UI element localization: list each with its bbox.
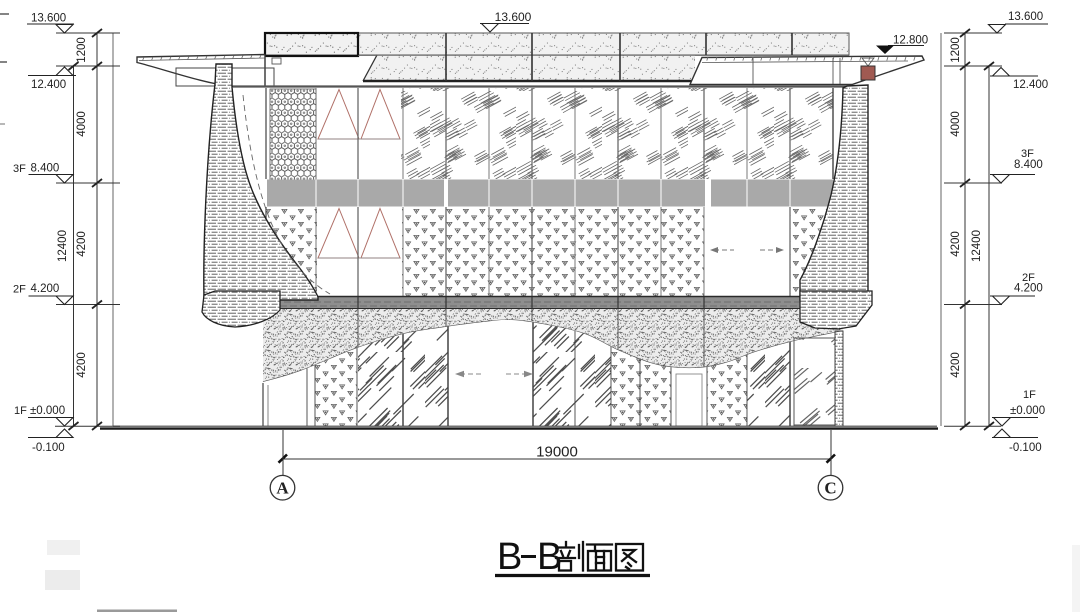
svg-text:13.600: 13.600	[31, 13, 66, 25]
svg-text:2F: 2F	[13, 284, 26, 296]
svg-text:4200: 4200	[950, 231, 962, 257]
svg-text:13.600: 13.600	[1008, 11, 1043, 23]
svg-text:1F: 1F	[14, 405, 27, 417]
svg-text:8.400: 8.400	[1014, 159, 1043, 171]
svg-text:4.200: 4.200	[31, 283, 60, 295]
svg-text:-0.100: -0.100	[1009, 442, 1042, 454]
svg-text:B: B	[497, 536, 522, 578]
svg-text:4000: 4000	[950, 111, 962, 137]
svg-text:4200: 4200	[950, 352, 962, 378]
svg-text:8.400: 8.400	[31, 163, 60, 175]
svg-text:12400: 12400	[57, 230, 69, 262]
svg-text:13.600: 13.600	[495, 10, 532, 24]
svg-text:A: A	[276, 479, 289, 498]
svg-text:3F: 3F	[13, 163, 26, 175]
svg-text:4000: 4000	[76, 111, 88, 137]
svg-text:4200: 4200	[76, 352, 88, 378]
svg-text:12.800: 12.800	[893, 35, 928, 47]
svg-text:1F: 1F	[1023, 389, 1036, 401]
svg-text:12400: 12400	[971, 230, 983, 262]
svg-text:4200: 4200	[76, 231, 88, 257]
svg-text:12.400: 12.400	[31, 79, 66, 91]
svg-text:±0.000: ±0.000	[1010, 405, 1045, 417]
svg-text:±0.000: ±0.000	[30, 405, 65, 417]
svg-text:19000: 19000	[536, 444, 578, 461]
svg-text:4.200: 4.200	[1014, 283, 1043, 295]
svg-text:1200: 1200	[76, 37, 88, 63]
svg-text:12.400: 12.400	[1013, 79, 1048, 91]
svg-text:-0.100: -0.100	[32, 442, 65, 454]
svg-text:C: C	[824, 479, 836, 498]
svg-text:1200: 1200	[950, 37, 962, 63]
